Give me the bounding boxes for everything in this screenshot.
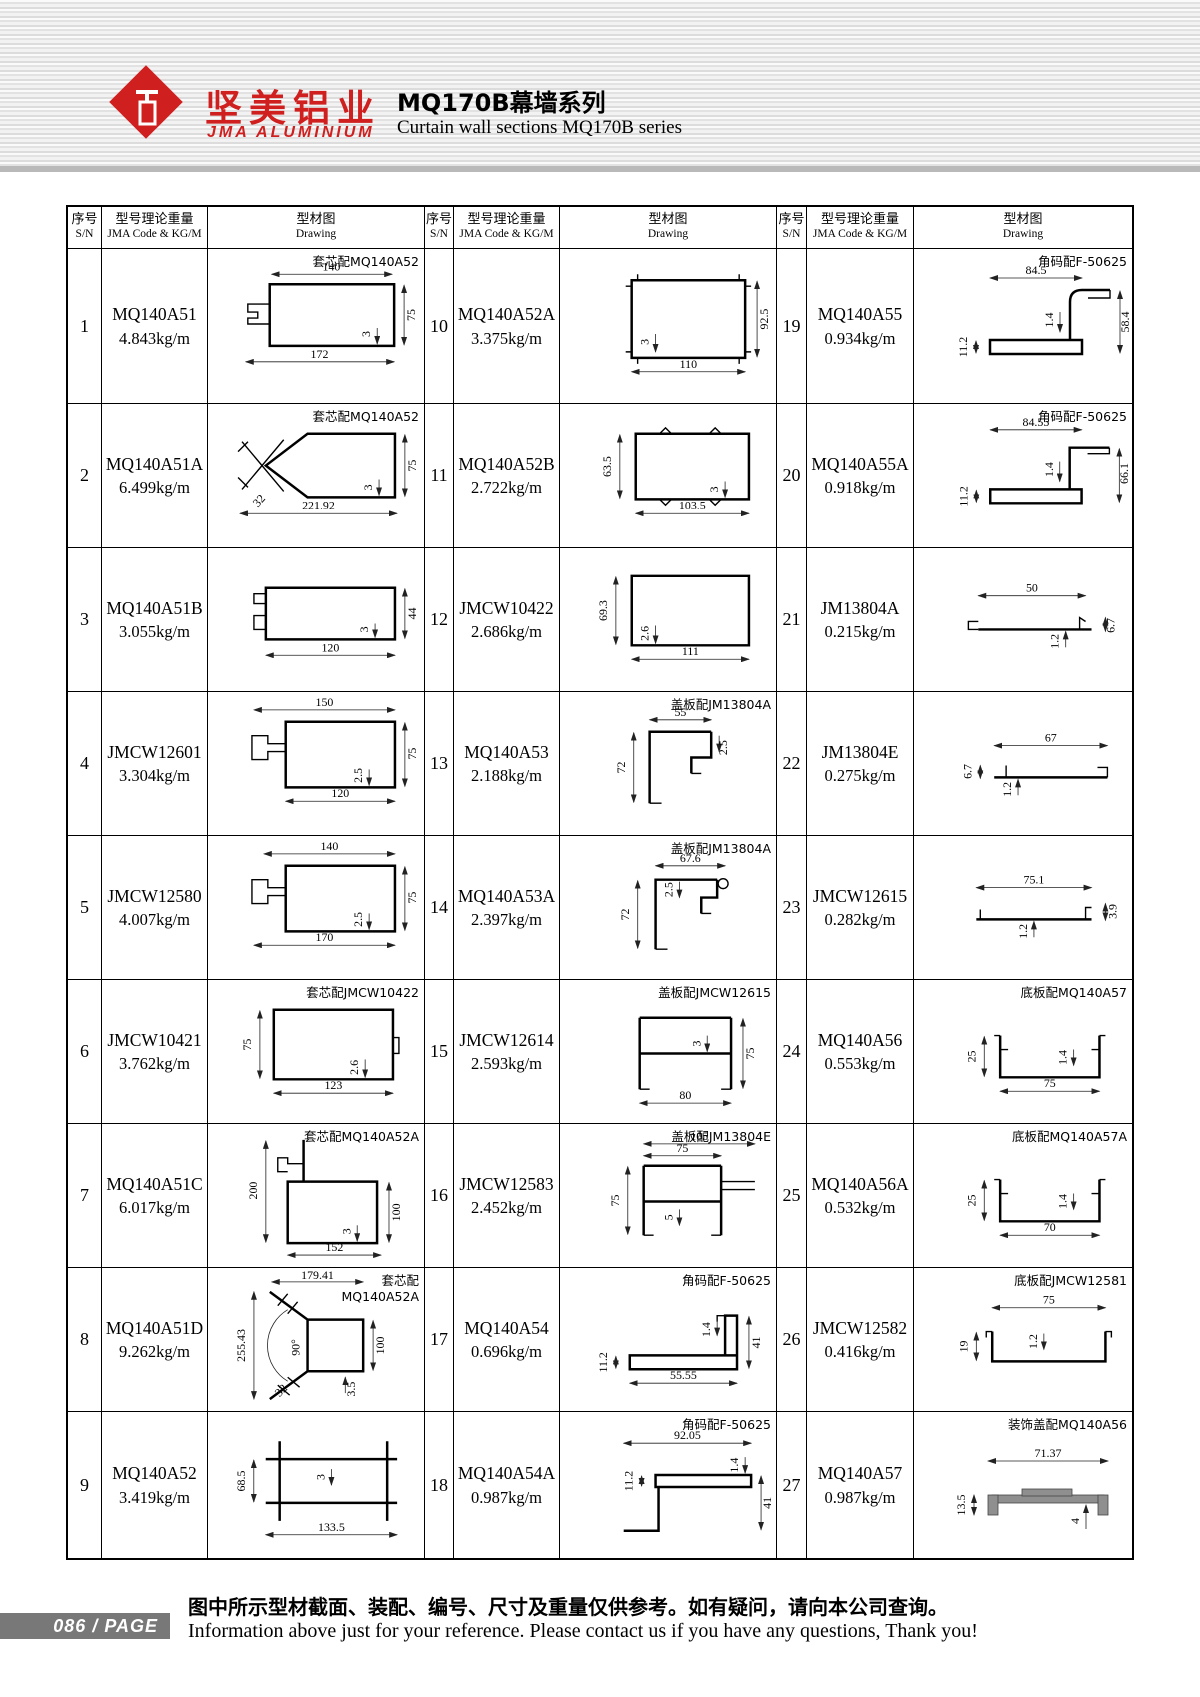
svg-text:6.7: 6.7 xyxy=(1103,618,1117,633)
profile-drawing: 150 75 2.5 120 xyxy=(208,692,424,835)
footer-note-cn: 图中所示型材截面、装配、编号、尺寸及重量仅供参考。如有疑问，请向本公司查询。 xyxy=(188,1591,948,1620)
jma-logo-icon xyxy=(112,70,192,150)
drawing-cell: 盖板配JMCW12615 3 75 80 xyxy=(560,980,777,1124)
svg-text:11.2: 11.2 xyxy=(956,337,970,358)
drawing-cell: 67 6.7 1.2 xyxy=(914,692,1132,836)
profile-drawing: 1.4 41 11.2 55.55 xyxy=(560,1268,776,1411)
profile-weight: 4.843kg/m xyxy=(119,327,190,350)
svg-text:172: 172 xyxy=(311,347,329,361)
drawing-cell: 盖板配JM13804E 105 75 75 5 xyxy=(560,1124,777,1268)
svg-text:80: 80 xyxy=(679,1088,691,1102)
svg-text:75: 75 xyxy=(405,460,419,472)
sn-cell: 5 xyxy=(68,836,102,980)
sn-cell: 13 xyxy=(425,692,454,836)
svg-text:75: 75 xyxy=(1044,1076,1056,1090)
svg-text:11.2: 11.2 xyxy=(956,486,970,506)
profile-drawing: 75 19 1.2 xyxy=(914,1268,1132,1411)
drawing-cell: 装饰盖配MQ140A56 71.37 13.5 4 xyxy=(914,1412,1132,1558)
drawing-cell: 63.5 3 103.5 xyxy=(560,404,777,548)
svg-text:2.6: 2.6 xyxy=(347,1060,361,1075)
svg-text:200: 200 xyxy=(246,1182,260,1200)
drawing-cell: 角码配F-50625 84.5 1.4 58.4 11.2 xyxy=(914,249,1132,404)
svg-text:41: 41 xyxy=(760,1497,774,1509)
svg-text:170: 170 xyxy=(316,930,334,944)
profile-drawing: 25 1.4 75 xyxy=(914,980,1132,1123)
svg-text:68.5: 68.5 xyxy=(234,1471,248,1492)
drawing-cell: 套芯配MQ140A52 75 3 221.92 32 xyxy=(208,404,425,548)
code-cell: MQ140A54A0.987kg/m xyxy=(454,1412,560,1558)
svg-text:100: 100 xyxy=(373,1336,387,1354)
code-cell: MQ140A51C6.017kg/m xyxy=(102,1124,208,1268)
svg-text:110: 110 xyxy=(680,357,697,371)
svg-text:58.4: 58.4 xyxy=(1118,312,1132,333)
svg-text:6.7: 6.7 xyxy=(960,764,974,779)
code-cell: JMCW125820.416kg/m xyxy=(807,1268,914,1412)
svg-text:75: 75 xyxy=(1043,1293,1055,1307)
code-cell: MQ140A523.419kg/m xyxy=(102,1412,208,1558)
code-cell: JMCW126150.282kg/m xyxy=(807,836,914,980)
drawing-note: 套芯配MQ140A52 xyxy=(313,251,419,270)
profile-drawing: 67 6.7 1.2 xyxy=(914,692,1132,835)
svg-text:50: 50 xyxy=(1026,581,1038,595)
logo-glyph-icon xyxy=(112,70,192,150)
code-cell: MQ140A53A2.397kg/m xyxy=(454,836,560,980)
svg-text:75: 75 xyxy=(405,748,419,760)
sn-cell: 20 xyxy=(777,404,807,548)
code-cell: MQ140A550.934kg/m xyxy=(807,249,914,404)
col-head-drawing: 型材图Drawing xyxy=(208,207,425,249)
svg-text:221.92: 221.92 xyxy=(302,498,335,512)
profile-drawing: 75.1 3.9 1.2 xyxy=(914,836,1132,979)
col-head-code: 型号理论重量JMA Code & KG/M xyxy=(102,207,208,249)
svg-text:3: 3 xyxy=(339,1228,353,1234)
profile-drawing: 69.3 2.6 111 xyxy=(560,548,776,691)
svg-text:120: 120 xyxy=(331,786,349,800)
code-cell: MQ140A532.188kg/m xyxy=(454,692,560,836)
svg-text:70: 70 xyxy=(1044,1220,1056,1234)
svg-text:2.5: 2.5 xyxy=(351,912,365,927)
svg-text:2.6: 2.6 xyxy=(638,626,652,641)
logo-company-name-en: JMA ALUMINIUM xyxy=(207,124,375,142)
sn-cell: 10 xyxy=(425,249,454,404)
profile-drawing: 3 75 80 xyxy=(560,980,776,1123)
code-cell: MQ140A56A0.532kg/m xyxy=(807,1124,914,1268)
code-cell: MQ140A55A0.918kg/m xyxy=(807,404,914,548)
code-cell: MQ140A570.987kg/m xyxy=(807,1412,914,1558)
drawing-cell: 套芯配JMCW10422 75 2.6 123 xyxy=(208,980,425,1124)
col-head-sn: 序号S/N xyxy=(425,207,454,249)
sn-cell: 1 xyxy=(68,249,102,404)
svg-text:55.55: 55.55 xyxy=(670,1368,697,1382)
sn-cell: 16 xyxy=(425,1124,454,1268)
drawing-cell: 68.5 3 133.5 xyxy=(208,1412,425,1558)
svg-text:72: 72 xyxy=(618,908,632,920)
svg-text:5: 5 xyxy=(661,1214,675,1220)
svg-text:75: 75 xyxy=(743,1047,757,1059)
svg-text:63.5: 63.5 xyxy=(600,456,614,477)
page-subtitle: Curtain wall sections MQ170B series xyxy=(397,117,682,139)
svg-text:1.4: 1.4 xyxy=(1042,462,1056,477)
code-cell: MQ140A51B3.055kg/m xyxy=(102,548,208,692)
sn-cell: 8 xyxy=(68,1268,102,1412)
svg-text:72: 72 xyxy=(614,761,628,773)
svg-text:66.1: 66.1 xyxy=(1117,463,1131,484)
profile-drawing: 44 3 120 xyxy=(208,548,424,691)
profile-code: MQ140A51 xyxy=(112,302,197,327)
svg-text:69.3: 69.3 xyxy=(596,600,610,621)
svg-text:1.4: 1.4 xyxy=(1042,313,1056,328)
svg-text:3.5: 3.5 xyxy=(344,1382,358,1397)
profile-drawing: 3 92.5 110 xyxy=(560,249,776,403)
col-head-drawing: 型材图Drawing xyxy=(914,207,1132,249)
svg-text:140: 140 xyxy=(320,839,338,853)
svg-text:75: 75 xyxy=(240,1039,254,1051)
drawing-cell: 69.3 2.6 111 xyxy=(560,548,777,692)
sn-cell: 23 xyxy=(777,836,807,980)
svg-text:3: 3 xyxy=(638,339,652,345)
page-number: 086 xyxy=(53,1616,86,1637)
profile-drawing: 67.6 72 2.5 xyxy=(560,836,776,979)
svg-text:1.4: 1.4 xyxy=(1056,1194,1070,1209)
code-cell: MQ140A51A6.499kg/m xyxy=(102,404,208,548)
col-head-sn: 序号S/N xyxy=(777,207,807,249)
svg-text:111: 111 xyxy=(682,644,699,658)
svg-text:44: 44 xyxy=(405,608,419,620)
code-cell: JMCW126142.593kg/m xyxy=(454,980,560,1124)
svg-text:11.2: 11.2 xyxy=(596,1352,610,1372)
col-head-drawing: 型材图Drawing xyxy=(560,207,777,249)
svg-text:1.4: 1.4 xyxy=(699,1322,713,1337)
code-cell: MQ140A540.696kg/m xyxy=(454,1268,560,1412)
profile-drawing: 140 75 2.5 170 xyxy=(208,836,424,979)
drawing-cell: 套芯配MQ140A52A 200 100 3 152 xyxy=(208,1124,425,1268)
svg-text:75: 75 xyxy=(405,892,419,904)
svg-text:67: 67 xyxy=(1045,731,1057,745)
svg-text:1.4: 1.4 xyxy=(727,1458,741,1473)
profile-drawing: 50 1.2 6.7 xyxy=(914,548,1132,691)
svg-text:255.43: 255.43 xyxy=(234,1329,248,1362)
svg-text:3: 3 xyxy=(689,1041,703,1047)
sn-cell: 11 xyxy=(425,404,454,548)
page-title: MQ170B幕墙系列 xyxy=(397,83,606,118)
sn-cell: 7 xyxy=(68,1124,102,1268)
svg-text:1.2: 1.2 xyxy=(1048,634,1062,649)
svg-text:3: 3 xyxy=(357,626,371,632)
profile-drawing: 140 75 3 172 xyxy=(208,249,424,403)
drawing-cell: 75.1 3.9 1.2 xyxy=(914,836,1132,980)
drawing-cell: 套芯配MQ140A52 140 75 3 172 xyxy=(208,249,425,404)
svg-text:103.5: 103.5 xyxy=(679,498,706,512)
svg-text:75: 75 xyxy=(404,309,418,321)
svg-text:3: 3 xyxy=(313,1474,327,1480)
sn-cell: 4 xyxy=(68,692,102,836)
sn-cell: 17 xyxy=(425,1268,454,1412)
col-head-code: 型号理论重量JMA Code & KG/M xyxy=(807,207,914,249)
profile-drawing: 68.5 3 133.5 xyxy=(208,1412,424,1558)
svg-text:3: 3 xyxy=(707,486,721,492)
sn-cell: 14 xyxy=(425,836,454,980)
profile-drawing: 84.55 1.4 66.1 11.2 xyxy=(914,404,1132,547)
col-head-drawing-cn: 型材图 xyxy=(296,213,335,228)
code-cell: MQ140A560.553kg/m xyxy=(807,980,914,1124)
profile-drawing: 55 72 2.5 xyxy=(560,692,776,835)
drawing-cell: 盖板配JM13804A 67.6 72 2.5 xyxy=(560,836,777,980)
profile-drawing: 84.5 1.4 58.4 11.2 xyxy=(914,249,1132,403)
sn-cell: 2 xyxy=(68,404,102,548)
drawing-cell: 角码配F-50625 92.05 1.4 11.2 41 xyxy=(560,1412,777,1558)
svg-text:1.2: 1.2 xyxy=(1000,782,1014,797)
page-label: / PAGE xyxy=(92,1616,158,1637)
svg-text:133.5: 133.5 xyxy=(318,1520,345,1534)
drawing-cell: 3 92.5 110 xyxy=(560,249,777,404)
svg-text:25: 25 xyxy=(964,1194,978,1206)
sn-cell: 19 xyxy=(777,249,807,404)
svg-text:152: 152 xyxy=(325,1240,343,1254)
col-head-drawing-en: Drawing xyxy=(296,228,336,241)
sn-cell: 15 xyxy=(425,980,454,1124)
sn-cell: 18 xyxy=(425,1412,454,1558)
sn-cell: 12 xyxy=(425,548,454,692)
svg-text:71.37: 71.37 xyxy=(1035,1446,1062,1460)
svg-text:25: 25 xyxy=(964,1050,978,1062)
svg-text:92.5: 92.5 xyxy=(757,309,771,330)
sn-cell: 6 xyxy=(68,980,102,1124)
drawing-cell: 44 3 120 xyxy=(208,548,425,692)
drawing-cell: 角码配F-50625 1.4 41 11.2 55.55 xyxy=(560,1268,777,1412)
page-header-band: 坚美铝业 JMA ALUMINIUM MQ170B幕墙系列 Curtain wa… xyxy=(0,0,1200,172)
svg-text:2.5: 2.5 xyxy=(351,768,365,783)
footer-note-en: Information above just for your referenc… xyxy=(188,1620,978,1643)
sn-cell: 25 xyxy=(777,1124,807,1268)
drawing-cell: 角码配F-50625 84.55 1.4 66.1 11.2 xyxy=(914,404,1132,548)
col-head-code: 型号理论重量JMA Code & KG/M xyxy=(454,207,560,249)
svg-text:1.4: 1.4 xyxy=(1056,1050,1070,1065)
profile-drawing: 71.37 13.5 4 xyxy=(914,1412,1132,1558)
profile-drawing: 200 100 3 152 xyxy=(208,1124,424,1267)
drawing-cell: 盖板配JM13804A 55 72 2.5 xyxy=(560,692,777,836)
code-cell: MQ140A52B2.722kg/m xyxy=(454,404,560,548)
svg-text:100: 100 xyxy=(389,1203,403,1221)
profile-drawing: 75 3 221.92 32 xyxy=(208,404,424,547)
svg-text:75.1: 75.1 xyxy=(1024,873,1045,887)
profile-drawing: 92.05 1.4 11.2 41 xyxy=(560,1412,776,1558)
svg-text:3.9: 3.9 xyxy=(1105,904,1119,919)
svg-text:1.2: 1.2 xyxy=(1016,924,1030,939)
svg-text:4: 4 xyxy=(1068,1518,1082,1524)
code-cell: JMCW126013.304kg/m xyxy=(102,692,208,836)
svg-text:41: 41 xyxy=(749,1336,763,1348)
sn-cell: 24 xyxy=(777,980,807,1124)
profile-table: 序号S/N 型号理论重量JMA Code & KG/M 型材图Drawing 序… xyxy=(66,205,1134,1560)
svg-text:75: 75 xyxy=(608,1194,622,1206)
svg-text:11.2: 11.2 xyxy=(622,1471,636,1491)
svg-text:120: 120 xyxy=(321,640,339,654)
svg-text:13.5: 13.5 xyxy=(954,1495,968,1516)
code-cell: JMCW125804.007kg/m xyxy=(102,836,208,980)
profile-drawing: 63.5 3 103.5 xyxy=(560,404,776,547)
sn-cell: 27 xyxy=(777,1412,807,1558)
sn-cell: 26 xyxy=(777,1268,807,1412)
code-cell: MQ140A52A3.375kg/m xyxy=(454,249,560,404)
svg-text:90°: 90° xyxy=(289,1339,303,1356)
svg-text:2.5: 2.5 xyxy=(661,882,675,897)
drawing-cell: 150 75 2.5 120 xyxy=(208,692,425,836)
svg-text:1.2: 1.2 xyxy=(1026,1334,1040,1349)
svg-text:2.5: 2.5 xyxy=(716,740,730,755)
col-head-sn-en: S/N xyxy=(76,228,94,241)
col-head-sn: 序号S/N xyxy=(68,207,102,249)
profile-drawing: 75 2.6 123 xyxy=(208,980,424,1123)
svg-text:3: 3 xyxy=(359,331,373,337)
sn-cell: 3 xyxy=(68,548,102,692)
sn-cell: 21 xyxy=(777,548,807,692)
drawing-cell: 底板配JMCW12581 75 19 1.2 xyxy=(914,1268,1132,1412)
code-cell: JM13804E0.275kg/m xyxy=(807,692,914,836)
code-cell: MQ140A514.843kg/m xyxy=(102,249,208,404)
drawing-cell: 底板配MQ140A57 25 1.4 75 xyxy=(914,980,1132,1124)
page-number-badge: 086 / PAGE xyxy=(0,1613,170,1639)
svg-text:123: 123 xyxy=(324,1078,342,1092)
profile-drawing: 105 75 75 5 xyxy=(560,1124,776,1267)
svg-text:32: 32 xyxy=(250,491,268,509)
code-cell: MQ140A51D9.262kg/m xyxy=(102,1268,208,1412)
sn-cell: 9 xyxy=(68,1412,102,1558)
svg-text:19: 19 xyxy=(956,1340,970,1352)
code-cell: JM13804A0.215kg/m xyxy=(807,548,914,692)
drawing-cell: 140 75 2.5 170 xyxy=(208,836,425,980)
code-cell: JMCW104222.686kg/m xyxy=(454,548,560,692)
svg-text:150: 150 xyxy=(316,695,334,709)
svg-text:3: 3 xyxy=(361,484,375,490)
drawing-cell: 50 1.2 6.7 xyxy=(914,548,1132,692)
code-cell: JMCW125832.452kg/m xyxy=(454,1124,560,1268)
sn-cell: 22 xyxy=(777,692,807,836)
col-head-code-cn: 型号理论重量 xyxy=(115,213,193,228)
drawing-cell: 套芯配MQ140A52A 179.41 255.43 90° 100 3.5 3… xyxy=(208,1268,425,1412)
col-head-code-en: JMA Code & KG/M xyxy=(107,228,201,241)
drawing-cell: 底板配MQ140A57A 25 1.4 70 xyxy=(914,1124,1132,1268)
profile-drawing: 25 1.4 70 xyxy=(914,1124,1132,1267)
col-head-sn-cn: 序号 xyxy=(71,213,97,228)
code-cell: JMCW104213.762kg/m xyxy=(102,980,208,1124)
